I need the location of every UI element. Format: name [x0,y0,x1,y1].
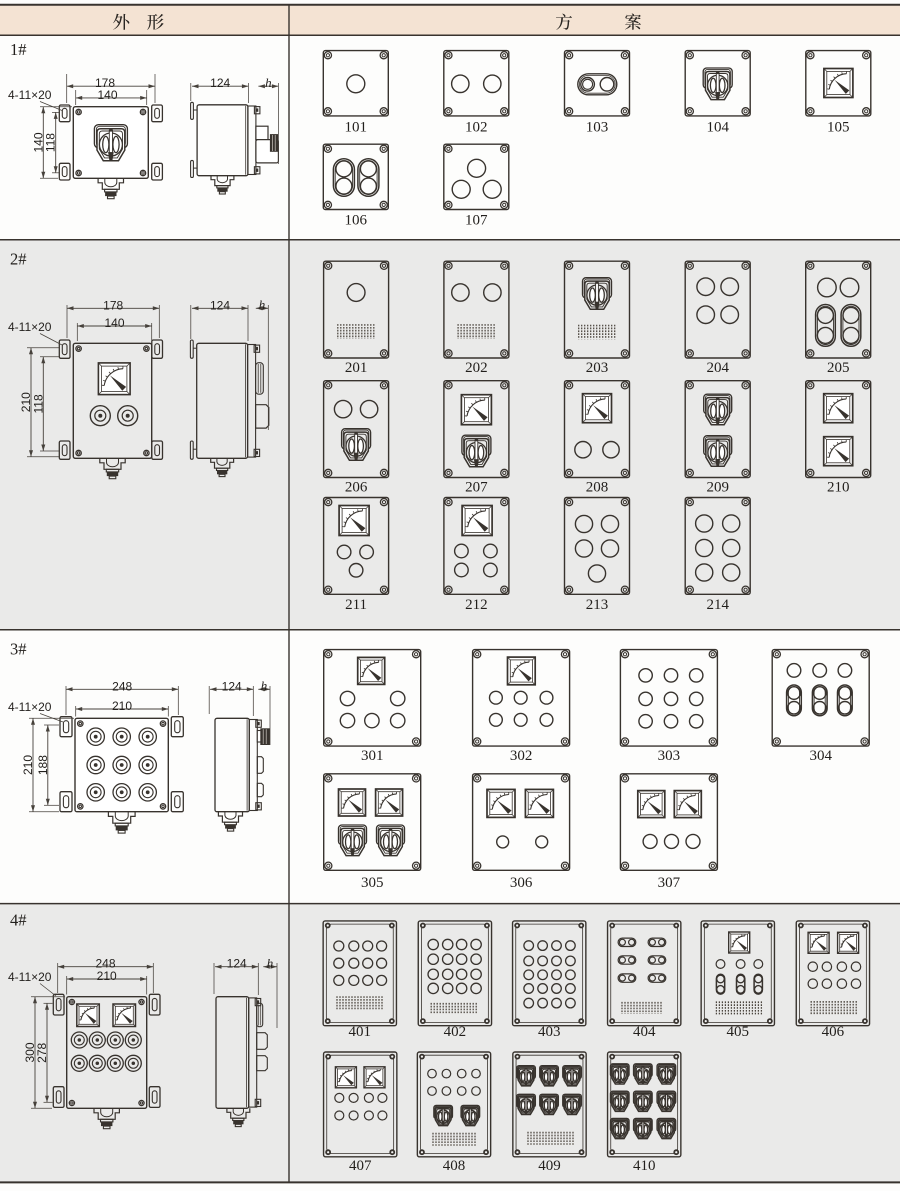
svg-text:210: 210 [21,755,35,775]
svg-text:201: 201 [345,360,368,376]
svg-text:h: h [261,678,268,693]
svg-text:304: 304 [809,748,832,764]
svg-text:h: h [265,75,272,90]
svg-text:102: 102 [465,119,488,135]
svg-text:124: 124 [210,76,230,90]
svg-text:210: 210 [97,969,117,983]
svg-text:402: 402 [444,1024,467,1040]
svg-text:211: 211 [345,597,367,613]
svg-text:2#: 2# [10,249,27,268]
svg-text:406: 406 [822,1024,845,1040]
svg-text:207: 207 [465,480,488,496]
svg-text:4#: 4# [10,911,27,930]
svg-text:404: 404 [633,1024,656,1040]
svg-text:124: 124 [210,298,230,312]
svg-text:204: 204 [706,360,729,376]
svg-text:302: 302 [510,748,533,764]
svg-text:408: 408 [443,1158,466,1174]
svg-text:107: 107 [465,213,488,229]
svg-text:106: 106 [345,213,368,229]
svg-text:403: 403 [538,1024,561,1040]
svg-text:h: h [259,297,266,312]
svg-text:405: 405 [727,1024,750,1040]
svg-text:140: 140 [104,316,124,330]
svg-text:103: 103 [586,119,609,135]
svg-text:301: 301 [361,748,384,764]
svg-text:307: 307 [658,875,681,891]
svg-text:410: 410 [633,1158,656,1174]
svg-text:278: 278 [35,1042,49,1062]
svg-text:248: 248 [112,679,132,693]
svg-text:101: 101 [345,119,368,135]
svg-text:401: 401 [349,1024,372,1040]
svg-text:305: 305 [361,875,384,891]
svg-text:124: 124 [227,957,247,971]
svg-text:210: 210 [827,480,850,496]
svg-text:140: 140 [97,88,117,102]
svg-text:213: 213 [586,597,609,613]
svg-text:303: 303 [658,748,681,764]
svg-text:205: 205 [827,360,850,376]
svg-text:118: 118 [31,394,45,413]
svg-text:124: 124 [222,679,242,693]
svg-text:4-11×20: 4-11×20 [8,970,52,984]
svg-text:202: 202 [465,360,488,376]
svg-text:178: 178 [103,298,123,312]
svg-text:210: 210 [112,699,132,713]
svg-text:214: 214 [706,597,729,613]
svg-text:212: 212 [465,597,488,613]
svg-text:188: 188 [36,755,50,775]
svg-text:4-11×20: 4-11×20 [8,320,52,334]
svg-text:203: 203 [586,360,609,376]
svg-text:105: 105 [827,119,850,135]
svg-text:h: h [267,956,274,971]
svg-text:209: 209 [706,480,729,496]
svg-text:407: 407 [349,1158,372,1174]
svg-text:409: 409 [538,1158,561,1174]
svg-text:1#: 1# [10,40,27,59]
svg-text:306: 306 [510,875,533,891]
svg-text:206: 206 [345,480,368,496]
svg-text:4-11×20: 4-11×20 [8,700,52,714]
svg-text:208: 208 [586,480,609,496]
svg-text:118: 118 [44,133,58,152]
svg-text:104: 104 [706,119,729,135]
svg-text:4-11×20: 4-11×20 [8,88,52,102]
svg-text:3#: 3# [10,640,27,659]
